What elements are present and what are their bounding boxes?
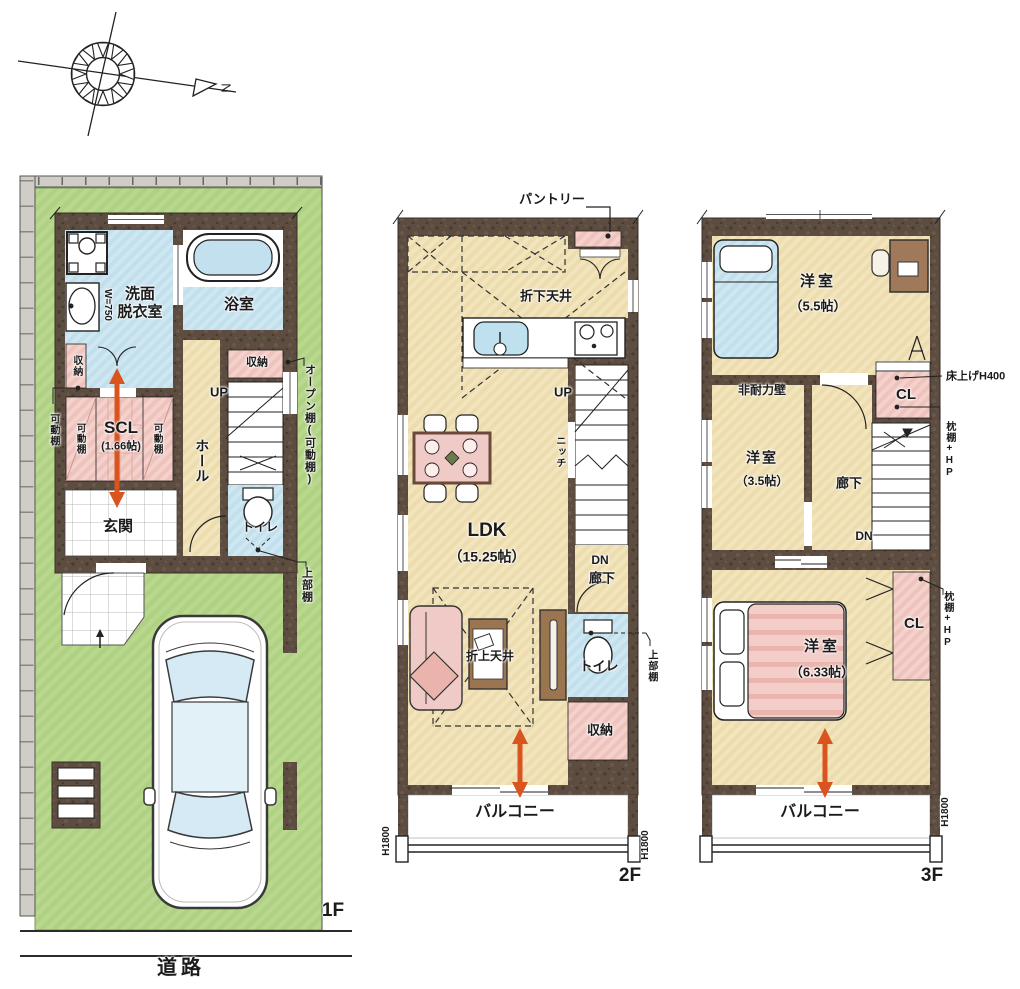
room-label-senmen: 洗面 脱衣室 [117,285,162,320]
plan-graphics [0,0,1020,989]
boundary-wall-lower [283,762,297,830]
pantry-box [575,231,621,247]
room-label-cl-lower: CL [904,615,924,633]
label-kadodana-left: 可動棚 [74,423,85,455]
stairs-3f [872,423,930,550]
room-label-shuno-2f: 収納 [587,722,613,737]
label-kadodana-right: 可動棚 [151,423,162,455]
label-h1800-3f: H1800 [940,797,952,826]
floor-label-1f: 1F [322,900,344,922]
room-label-scl: SCL [104,418,138,438]
bed-single-icon [714,240,778,358]
label-orishita-tenjo: 折下天井 [520,288,572,303]
room-label-toilet-2f: トイレ [579,658,618,673]
chair-icon [872,250,889,276]
room-label-hall: ホール [194,439,211,484]
room-label-633: 洋室 [804,638,840,656]
room-label-shuno-left: 収納 [70,355,82,377]
room-label-rouka-2f: 廊下 [589,570,615,585]
label-niche: ニッチ [553,436,565,469]
entrance-door-gap [96,563,146,573]
room-label-633-size: （6.33帖） [790,664,854,679]
label-oriage-tenjo: 折上天井 [466,649,514,663]
sofa-icon [410,606,462,710]
room-label-bath: 浴室 [224,296,254,314]
floor-label-3f: 3F [921,865,943,887]
stairs-2f [575,365,628,545]
car-mirror-left [144,788,155,805]
room-35 [712,385,804,550]
label-jobudana-1f: 上部棚 [300,567,313,603]
label-h1800-2f-left: H1800 [381,826,393,855]
room-label-cl-upper: CL [896,386,916,404]
bathtub-icon [187,234,279,281]
label-open-shelf: オープン棚(可動棚) [303,364,316,486]
label-jobudana-2f: 上部棚 [645,650,657,683]
label-pantry: パントリー [519,191,585,206]
bed-double-icon [714,602,846,720]
room-label-toilet-1f: トイレ [242,520,278,534]
room-label-scl-size: (1.66帖) [101,441,141,454]
floor-label-2f: 2F [619,865,641,887]
boundary-wall-upper [283,573,297,653]
room-label-balcony-3f: バルコニー [780,804,860,823]
washer-pan-icon [67,232,107,274]
label-kadodana-outer: 可動棚 [47,414,59,447]
label-up-1f: UP [210,384,228,399]
room-label-rouka-3f: 廊下 [836,475,862,490]
room-label-balcony-2f: バルコニー [475,804,555,823]
compass-north-label: N [218,83,233,92]
floor-plan-canvas: 洗面 脱衣室 浴室 W=750 収納 可動棚 収納 オープン棚(可動棚) UP … [0,0,1020,989]
label-hitairyoku: 非耐力壁 [738,383,786,397]
balcony-3f [700,785,942,862]
label-w750: W=750 [101,289,113,321]
label-dn-3f: DN [855,529,872,543]
car-mirror-right [265,788,276,805]
label-up-2f: UP [554,384,572,399]
compass-rose [18,12,236,136]
label-dn-2f: DN [591,553,608,567]
room-label-35: 洋室 [746,450,778,467]
road-label: 道路 [157,957,205,981]
room-label-ldk-size: （15.25帖） [448,549,525,566]
room-label-55: 洋室 [800,273,836,291]
room-label-genkan: 玄関 [103,518,133,536]
room-label-35-size: （3.5帖） [736,474,789,488]
niche-slot [568,422,575,478]
balcony-2f [396,785,640,862]
room-label-shuno-stair: 収納 [246,357,268,370]
label-makura-upper: 枕棚+HP [943,421,955,479]
stove-icon [575,322,617,355]
room-rouka-3f [812,385,872,550]
compass-north-arrow [193,79,216,96]
outdoor-steps [52,762,100,828]
label-h1800-2f-right: H1800 [640,830,652,859]
tv-board-icon [540,610,566,700]
room-label-55-size: （5.5帖） [789,298,846,313]
wash-basin-icon [66,283,99,331]
label-makura-lower: 枕棚+HP [941,591,953,649]
room-label-ldk: LDK [467,520,506,542]
floorplan-2f [393,207,650,862]
label-yukaage: 床上げH400 [946,371,1005,384]
car-illustration [144,616,276,908]
